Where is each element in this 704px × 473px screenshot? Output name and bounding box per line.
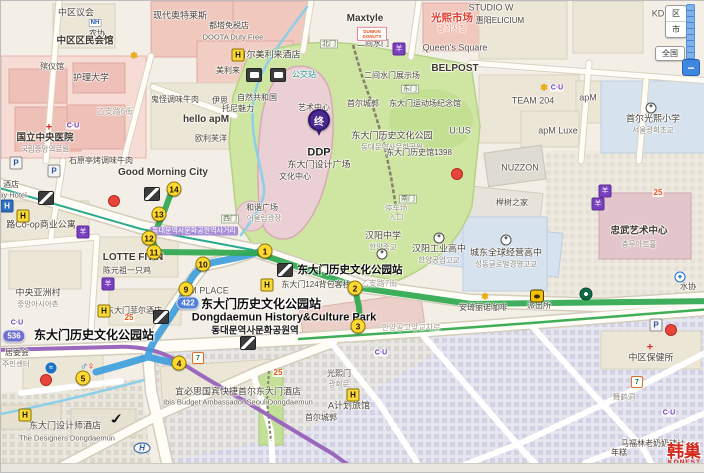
- school-gwanghui-icon[interactable]: *: [646, 103, 657, 114]
- label-ddp-station-main-en: Dongdaemun History&Culture Park: [192, 313, 377, 324]
- label-south-gate: 南门: [399, 195, 417, 204]
- label-west-gate: 西门: [221, 215, 239, 224]
- dunkin-donuts-icon[interactable]: DUNKIN DONUTS: [357, 27, 387, 41]
- zoom-slider[interactable]: [686, 4, 695, 60]
- subway-exit-1-icon[interactable]: [38, 191, 54, 205]
- label-station-crossroad: 동대문역사문화공원역사거리: [150, 227, 238, 236]
- toilet-female-icon[interactable]: ♀: [87, 362, 95, 373]
- route-stop-marker-2[interactable]: 2: [348, 281, 363, 296]
- subway-exit-4-icon[interactable]: [240, 336, 256, 350]
- label-east-gate: 东门: [401, 85, 419, 94]
- label-tonymoly: 托尼魅力: [222, 105, 254, 113]
- gs25-2-icon[interactable]: 25: [273, 369, 284, 377]
- route-badge-536: 536: [2, 330, 25, 343]
- label-gwanghui-elementary-kr: 서울광희초교: [632, 126, 673, 134]
- route-stop-marker-12[interactable]: 12: [142, 231, 157, 246]
- label-national-medical-center-kr: 국립중앙의료원: [21, 145, 69, 153]
- label-hello-apm: hello apM: [183, 115, 229, 125]
- nike-icon[interactable]: ✔: [108, 412, 125, 427]
- label-gwanghuimun-kr: 광희문: [329, 380, 350, 388]
- route-stop-marker-10[interactable]: 10: [196, 257, 211, 272]
- label-central-asia-village: 中央亚洲村: [15, 289, 60, 298]
- shop-star-1-icon[interactable]: ✱: [130, 52, 138, 61]
- label-north-gate: 北门: [320, 40, 338, 49]
- nationwide-button[interactable]: 全国: [655, 46, 685, 61]
- hotel-a-plan-icon[interactable]: H: [347, 389, 360, 402]
- label-parking-entrance-1: 停车场: [385, 204, 408, 212]
- route-stop-marker-5[interactable]: 5: [76, 371, 91, 386]
- cu-3-icon[interactable]: C·U: [10, 320, 24, 327]
- shop-red-2-icon[interactable]: [451, 168, 463, 180]
- label-nuzzon: NUZZON: [501, 164, 539, 173]
- label-bus-station-label: 公交站: [292, 71, 316, 79]
- label-studio-w: STUDIO W: [469, 4, 514, 13]
- label-parking-entrance-2: 入口: [389, 213, 404, 221]
- label-queens-square: Queen's Square: [423, 44, 488, 53]
- gs25-1-icon[interactable]: 25: [124, 314, 135, 322]
- label-belpost: BELPOST: [431, 64, 478, 74]
- watermark-brand: 韩巢: [667, 443, 701, 460]
- school-hanyang-middle-icon[interactable]: *: [377, 249, 388, 260]
- parking-3-icon[interactable]: P: [650, 319, 663, 332]
- hotel-designers-icon[interactable]: H: [19, 409, 32, 422]
- label-suhyup: 水协: [680, 283, 696, 291]
- label-health-center: 中区保健所: [628, 354, 673, 363]
- shop-red-1-icon[interactable]: [40, 374, 52, 386]
- label-igansumun: 二间水门: [357, 40, 389, 48]
- label-apm: apM: [579, 94, 597, 103]
- shop-purple-3-icon[interactable]: 羊: [102, 278, 115, 291]
- label-backpackers-124: 东大门124背包客栈: [281, 281, 350, 289]
- level-district-button[interactable]: 区: [666, 6, 686, 21]
- label-olive-young: 欧利芙洋: [195, 135, 227, 143]
- label-chungmu-art-center: 忠武艺术中心: [610, 226, 667, 236]
- parking-1-icon[interactable]: P: [10, 157, 23, 170]
- route-stop-marker-3[interactable]: 3: [351, 319, 366, 334]
- school-seongdong-icon[interactable]: *: [501, 235, 512, 246]
- label-ddp-en: DDP: [307, 148, 330, 159]
- label-gwanghui-elementary: 首尔光熙小学: [626, 115, 680, 124]
- label-nursing-college: 护理大学: [73, 74, 109, 83]
- hotel-backpackers-124-icon[interactable]: H: [261, 279, 274, 292]
- hyundai-icon[interactable]: H: [134, 443, 151, 454]
- hotel-merriel-icon[interactable]: H: [232, 49, 245, 62]
- route-stop-marker-13[interactable]: 13: [152, 207, 167, 222]
- label-mabongnim-2: 年糕: [611, 449, 627, 457]
- label-igansumun-hall: 二间水门展示场: [364, 72, 420, 80]
- route-stop-marker-4[interactable]: 4: [172, 356, 187, 371]
- label-merriel: 美利来: [216, 67, 240, 75]
- destination-marker[interactable]: 终: [308, 109, 330, 136]
- label-seongdong-global-kr: 성동글로벌경영고교: [475, 260, 537, 268]
- label-chen-wonjo-chicken: 陈元祖一只鸡: [103, 267, 151, 275]
- map-overlay: 中区议会农协中区区民会馆现代奥特莱斯都塔免税店DOOTA Duty Free首尔…: [1, 1, 704, 472]
- shop-star-3-icon[interactable]: ✱: [481, 293, 489, 302]
- label-seokwonjeong-beef: 石原亭烤调味牛肉: [69, 157, 133, 165]
- label-hanyang-tech: 汉阳工业高中: [412, 245, 466, 254]
- label-hanyang-crossroad: 한양공고앞교차로: [382, 324, 441, 332]
- label-doota-cn: 都塔免税店: [209, 22, 249, 30]
- shop-purple-1-icon[interactable]: 羊: [393, 43, 406, 56]
- label-harmony-plaza-kr: 어울림광장: [247, 214, 282, 222]
- label-ddp-cn: 东大门设计广场: [287, 161, 350, 170]
- cu-2-icon[interactable]: C·U: [550, 85, 564, 92]
- red-cross-hospital-icon[interactable]: +: [46, 123, 52, 134]
- label-gwanghui-market-kr: 광희시장: [437, 25, 466, 33]
- label-merriel-hotel: 首尔美利来酒店: [237, 51, 300, 60]
- cu-1-icon[interactable]: C·U: [66, 123, 80, 130]
- label-community-center-kr: 주민센터: [2, 360, 30, 368]
- red-cross-health-center-icon[interactable]: +: [647, 343, 653, 354]
- map-level-control[interactable]: 区 市: [665, 5, 687, 38]
- subway-exit-2-icon[interactable]: [144, 187, 160, 201]
- starbucks-icon[interactable]: [580, 288, 593, 301]
- shop-purple-4-icon[interactable]: 羊: [599, 185, 612, 198]
- cu-5-icon[interactable]: C·U: [662, 410, 676, 417]
- label-ibis-cn: 宜必思国宾快捷首尔东大门酒店: [175, 388, 301, 397]
- label-seongdong-global: 城东全球经营高中: [470, 249, 542, 258]
- label-uus: U:US: [449, 127, 471, 136]
- label-elicium: 惠阳ELICIUM: [476, 17, 524, 25]
- label-maxtyle: Maxtyle: [347, 14, 384, 24]
- label-ddp-station-main-kr: 동대문역사문화공원역: [211, 326, 298, 336]
- route-stop-marker-9[interactable]: 9: [179, 282, 194, 297]
- label-harmony-plaza: 和谐广场: [246, 204, 278, 212]
- subway-exit-5-icon[interactable]: [153, 310, 169, 324]
- hotel-coop-icon[interactable]: H: [17, 210, 30, 223]
- school-hanyang-tech-icon[interactable]: *: [434, 233, 445, 244]
- label-jung-gu-community-hall: 中区区民会馆: [56, 36, 113, 46]
- seven-eleven-2-icon[interactable]: 7: [631, 376, 643, 388]
- route-stop-marker-11[interactable]: 11: [147, 245, 162, 260]
- label-good-morning-city: Good Morning City: [118, 168, 208, 178]
- label-jung-gu-council: 中区议会: [58, 9, 94, 18]
- label-gwanghuimun: 光熙门: [327, 370, 351, 378]
- label-angelinus-coffee: 安琦丽诺咖啡: [459, 304, 507, 312]
- label-nature-republic: 自然共和国: [237, 94, 277, 102]
- label-seoul-fortress-north: 首尔城郭: [347, 100, 379, 108]
- label-doota-en: DOOTA Duty Free: [203, 33, 264, 41]
- label-muhak-dong: 舞鹤洞: [613, 393, 636, 401]
- hotel-dongdaemun-feel-icon[interactable]: H: [98, 305, 111, 318]
- label-hyundai-outlets: 现代奥特莱斯: [153, 12, 207, 21]
- seven-eleven-1-icon[interactable]: 7: [192, 352, 204, 364]
- label-seoul-fortress-south: 首尔城郭: [305, 414, 337, 422]
- label-goblin-beef: 鬼怪调味牛肉: [151, 96, 199, 104]
- shop-purple-5-icon[interactable]: 羊: [592, 198, 605, 211]
- route-stop-marker-14[interactable]: 14: [167, 182, 182, 197]
- label-ddp-park: 东大门历史文化公园: [351, 132, 432, 141]
- label-hanyang-tech-kr: 한양공업고교: [418, 256, 459, 264]
- label-apm-luxe: apM Luxe: [538, 127, 578, 136]
- shop-red-3-icon[interactable]: [665, 324, 677, 336]
- label-euljiro-6-ga: 乙支路6街: [97, 108, 133, 116]
- label-central-asia-village-kr: 중앙아시아촌: [17, 300, 58, 308]
- parking-2-icon[interactable]: P: [48, 165, 61, 178]
- level-city-button[interactable]: 市: [666, 21, 686, 37]
- label-hanyang-middle: 汉阳中学: [365, 232, 401, 241]
- route-stop-marker-1[interactable]: 1: [258, 244, 273, 259]
- shop-purple-2-icon[interactable]: 羊: [77, 226, 90, 239]
- label-ddp-station-exit: 东大门历史文化公园站: [298, 265, 403, 276]
- zoom-out-button[interactable]: −: [682, 59, 700, 76]
- label-funeral-hall: 殡仪馆: [40, 63, 64, 71]
- label-team-204: TEAM 204: [512, 97, 555, 106]
- label-hotel-partial-cn: 酒店: [3, 181, 19, 189]
- label-police-box: 派出所: [527, 302, 551, 310]
- label-ddp-station-west: 东大门历史文化公园站: [34, 329, 154, 341]
- label-designers-hotel: 东大门设计师酒店: [29, 422, 101, 431]
- label-hotel-partial-en: ay Hotel: [0, 191, 27, 199]
- label-euljiro-7-ga: 乙支路7街: [361, 280, 397, 288]
- shop-red-4-icon[interactable]: [108, 195, 120, 207]
- route-badge-422: 422: [176, 297, 199, 310]
- nonghyup-icon[interactable]: NH: [89, 19, 102, 27]
- label-community-center: 居委会: [5, 349, 29, 357]
- destination-marker-label: 终: [308, 109, 330, 131]
- label-ibis-en: Ibis Budget Ambassador Seoul Dongdaemun: [163, 398, 313, 406]
- label-national-medical-center: 国立中央医院: [16, 133, 73, 143]
- label-designers-hotel-en: The Designers Dongdaemun: [19, 434, 115, 442]
- label-stadium-memorial: 东大门运动场纪念馆: [389, 100, 461, 108]
- label-a-plan-hostel: A计划旅馆: [328, 402, 370, 411]
- community-center-icon[interactable]: ≈: [46, 363, 57, 374]
- shop-star-2-icon[interactable]: ✱: [540, 84, 548, 93]
- bus-station-2-icon[interactable]: [270, 68, 286, 82]
- hotel-left-edge-icon[interactable]: H: [1, 200, 14, 213]
- label-zelkova-house: 榉树之家: [496, 199, 528, 207]
- police-icon[interactable]: [530, 290, 544, 303]
- suhyup-icon[interactable]: ✦: [675, 272, 686, 283]
- subway-exit-3-icon[interactable]: [277, 263, 293, 277]
- bus-station-1-icon[interactable]: [246, 68, 262, 82]
- label-culture-center: 文化中心: [279, 173, 311, 181]
- map-screenshot: 中区议会农协中区区民会馆现代奥特莱斯都塔免税店DOOTA Duty Free首尔…: [0, 0, 704, 473]
- cu-4-icon[interactable]: C·U: [374, 350, 388, 357]
- label-ddp-station-main: 东大门历史文化公园站: [201, 298, 321, 310]
- gs25-3-icon[interactable]: 25: [653, 189, 664, 197]
- label-history-hall-1398: 东大门历史馆1398: [386, 149, 452, 157]
- label-chungmu-art-center-kr: 충무아트홀: [622, 240, 657, 248]
- label-gwanghui-market: 光熙市场: [431, 13, 473, 24]
